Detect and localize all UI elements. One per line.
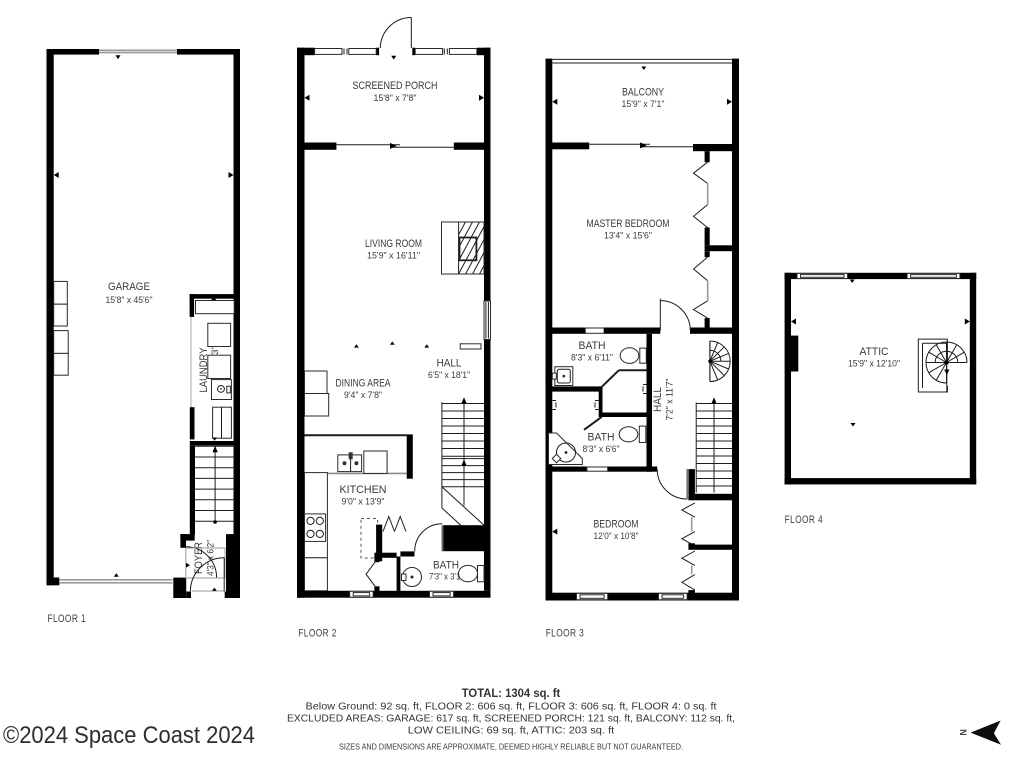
svg-text:DINING AREA: DINING AREA [336,378,392,390]
svg-text:KITCHEN: KITCHEN [340,484,387,496]
svg-text:GARAGE: GARAGE [108,281,150,293]
svg-text:FLOOR 3: FLOOR 3 [546,628,585,640]
svg-text:15'9" x 16'11": 15'9" x 16'11" [367,251,420,262]
svg-text:Below Ground: 92 sq. ft, FLOOR: Below Ground: 92 sq. ft, FLOOR 2: 606 sq… [306,702,717,713]
svg-text:8'3" x 6'6": 8'3" x 6'6" [583,444,620,455]
svg-text:TOTAL: 1304 sq. ft: TOTAL: 1304 sq. ft [462,688,561,700]
svg-text:LOW CEILING: 69 sq. ft, ATTIC:: LOW CEILING: 69 sq. ft, ATTIC: 203 sq. f… [408,726,615,737]
svg-text:15'8" x 7'8": 15'8" x 7'8" [374,93,417,104]
svg-text:BATH: BATH [588,432,615,444]
svg-text:9'0" x 13'9": 9'0" x 13'9" [342,497,385,508]
svg-text:LIVING ROOM: LIVING ROOM [365,238,422,250]
svg-text:FLOOR 4: FLOOR 4 [785,514,824,526]
svg-text:15'9" x 12'10": 15'9" x 12'10" [848,359,900,370]
svg-text:BATH: BATH [579,340,606,352]
svg-text:FLOOR 2: FLOOR 2 [298,628,337,640]
svg-text:FLOOR 1: FLOOR 1 [48,613,87,625]
svg-text:SIZES AND DIMENSIONS ARE APPRO: SIZES AND DIMENSIONS ARE APPROXIMATE, DE… [339,743,683,752]
svg-text:EXCLUDED AREAS: GARAGE: 617 sq: EXCLUDED AREAS: GARAGE: 617 sq. ft, SCRE… [287,714,735,725]
svg-text:7'2" x 11'7": 7'2" x 11'7" [665,379,676,421]
svg-text:15'8" x 45'6": 15'8" x 45'6" [106,295,153,306]
svg-text:N: N [959,729,969,736]
svg-text:6'5" x 18'1": 6'5" x 18'1" [428,370,470,381]
svg-text:4'3" x 6'2": 4'3" x 6'2" [206,540,217,576]
svg-text:ATTIC: ATTIC [860,346,889,358]
svg-text:BATH: BATH [433,560,459,572]
svg-text:13'4" x 15'6": 13'4" x 15'6" [604,231,652,242]
svg-text:HALL: HALL [652,387,664,412]
svg-text:7'3" x 3'1": 7'3" x 3'1" [429,572,463,583]
svg-text:HALL: HALL [437,358,462,370]
svg-text:15'9" x 7'1": 15'9" x 7'1" [622,99,665,110]
svg-text:BEDROOM: BEDROOM [594,519,639,531]
svg-text:9'4" x 7'8": 9'4" x 7'8" [344,390,382,401]
svg-text:8'3" x 6'11": 8'3" x 6'11" [571,353,613,364]
svg-text:SCREENED PORCH: SCREENED PORCH [353,80,438,92]
svg-text:MASTER BEDROOM: MASTER BEDROOM [587,218,670,230]
svg-text:BALCONY: BALCONY [622,87,665,99]
svg-text:©2024 Space Coast 2024: ©2024 Space Coast 2024 [3,722,255,749]
svg-text:12'0" x 10'8": 12'0" x 10'8" [594,531,639,542]
